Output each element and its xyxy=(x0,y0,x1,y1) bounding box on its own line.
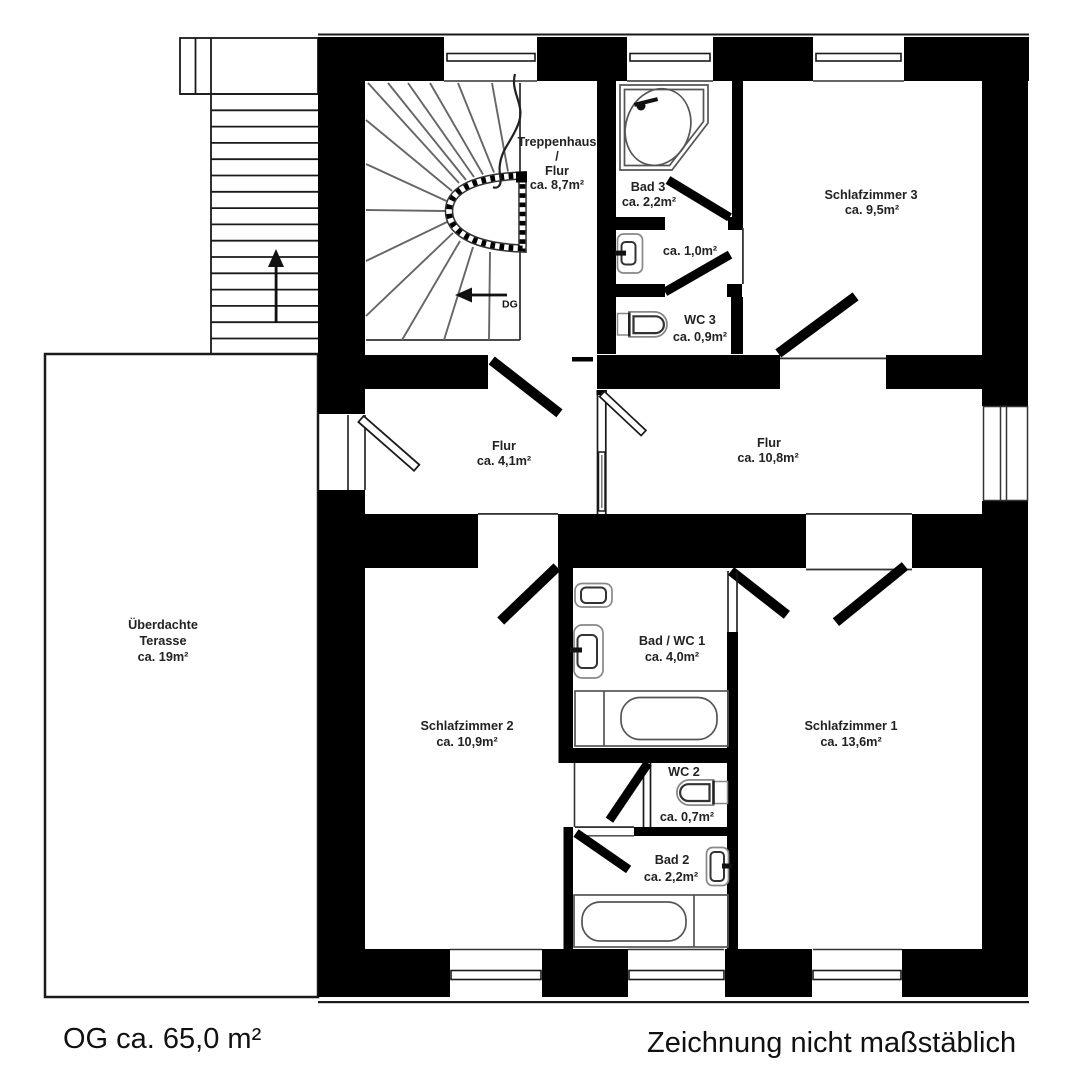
svg-text:Bad 2: Bad 2 xyxy=(655,853,690,867)
svg-text:WC 2: WC 2 xyxy=(668,765,700,779)
svg-text:Überdachte: Überdachte xyxy=(128,617,198,632)
svg-text:/: / xyxy=(555,150,559,164)
svg-text:ca. 0,9m²: ca. 0,9m² xyxy=(673,330,727,344)
svg-text:Flur: Flur xyxy=(757,436,781,450)
svg-text:Bad / WC 1: Bad / WC 1 xyxy=(639,634,705,648)
svg-text:Schlafzimmer 3: Schlafzimmer 3 xyxy=(824,188,917,202)
svg-text:Schlafzimmer 2: Schlafzimmer 2 xyxy=(420,719,513,733)
svg-text:ca. 9,5m²: ca. 9,5m² xyxy=(845,203,899,217)
svg-text:ca. 10,8m²: ca. 10,8m² xyxy=(737,451,798,465)
svg-text:Bad 3: Bad 3 xyxy=(631,180,666,194)
svg-text:OG ca. 65,0 m²: OG ca. 65,0 m² xyxy=(63,1023,262,1055)
svg-text:Flur: Flur xyxy=(545,164,569,178)
svg-text:ca. 0,7m²: ca. 0,7m² xyxy=(660,810,714,824)
svg-text:Treppenhaus: Treppenhaus xyxy=(518,135,597,149)
svg-text:ca. 2,2m²: ca. 2,2m² xyxy=(644,870,698,884)
svg-text:Zeichnung nicht maßstäblich: Zeichnung nicht maßstäblich xyxy=(647,1027,1016,1059)
svg-text:ca. 13,6m²: ca. 13,6m² xyxy=(820,735,881,749)
svg-text:ca. 4,0m²: ca. 4,0m² xyxy=(645,650,699,664)
svg-text:ca. 1,0m²: ca. 1,0m² xyxy=(663,244,717,258)
svg-text:WC 3: WC 3 xyxy=(684,313,716,327)
svg-text:ca. 4,1m²: ca. 4,1m² xyxy=(477,454,531,468)
svg-text:ca. 19m²: ca. 19m² xyxy=(138,650,189,664)
svg-text:Schlafzimmer 1: Schlafzimmer 1 xyxy=(804,719,897,733)
svg-text:ca. 2,2m²: ca. 2,2m² xyxy=(622,195,676,209)
svg-text:Terasse: Terasse xyxy=(139,634,186,648)
svg-text:DG: DG xyxy=(502,299,518,311)
svg-text:ca. 10,9m²: ca. 10,9m² xyxy=(436,735,497,749)
svg-text:Flur: Flur xyxy=(492,439,516,453)
svg-text:ca. 8,7m²: ca. 8,7m² xyxy=(530,178,584,192)
